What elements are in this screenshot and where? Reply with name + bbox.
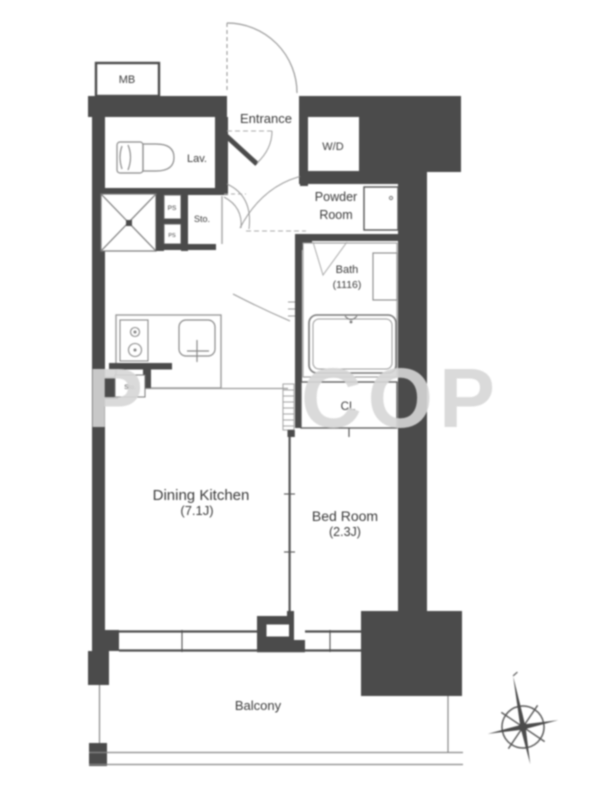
svg-text:MB: MB (119, 74, 136, 86)
svg-text:Bath: Bath (336, 264, 359, 276)
svg-text:PS: PS (168, 233, 176, 239)
svg-text:(1116): (1116) (333, 279, 362, 291)
svg-text:Bed Room: Bed Room (312, 508, 378, 524)
svg-text:Balcony: Balcony (235, 698, 282, 713)
svg-text:Dining Kitchen: Dining Kitchen (153, 487, 250, 504)
svg-text:P: P (87, 351, 143, 445)
svg-text:Sto.: Sto. (194, 214, 210, 224)
svg-text:(7.1J): (7.1J) (180, 503, 213, 518)
svg-text:Lav.: Lav. (187, 153, 207, 165)
svg-text:(2.3J): (2.3J) (329, 525, 361, 539)
svg-text:Entrance: Entrance (240, 111, 292, 126)
svg-text:W/D: W/D (322, 141, 343, 153)
svg-text:Powder: Powder (315, 190, 357, 204)
svg-text:Room: Room (319, 208, 352, 222)
svg-text:PS: PS (168, 205, 177, 212)
svg-text:COP: COP (301, 351, 501, 445)
